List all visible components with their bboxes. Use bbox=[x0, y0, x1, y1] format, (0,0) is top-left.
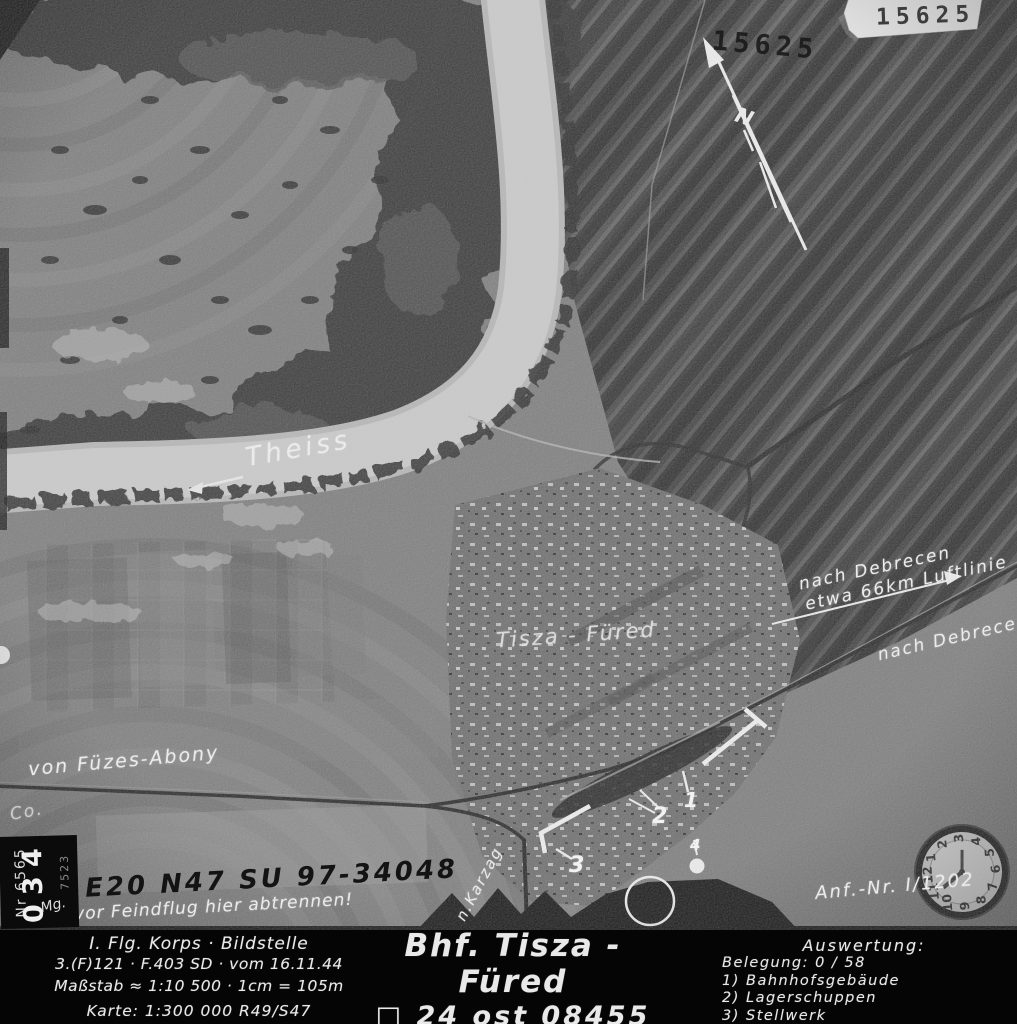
edge-stamp-digit: 4 bbox=[17, 848, 48, 868]
caption-eval-line: 2) Lagerschuppen bbox=[722, 990, 1014, 1008]
caption-target-code: □ 24 ost 08455 bbox=[348, 1001, 678, 1024]
caption-scale-line: Maßstab ≈ 1:10 500 · 1cm = 105m bbox=[34, 977, 364, 995]
caption-eval-line: Belegung: 0 / 58 bbox=[722, 955, 1014, 973]
caption-eval-block: Auswertung: Belegung: 0 / 58 1) Bahnhofs… bbox=[714, 936, 1014, 1024]
caption-title-block: Bhf. Tisza - Füred □ 24 ost 08455 bbox=[348, 928, 678, 1024]
aerial-recon-photo: N bbox=[0, 0, 1017, 1024]
caption-eval-line: 3) Stellwerk bbox=[722, 1008, 1014, 1024]
marker-3: 3 bbox=[569, 853, 584, 878]
caption-title: Bhf. Tisza - Füred bbox=[348, 928, 678, 1000]
caption-unit-block: I. Flg. Korps · Bildstelle 3.(F)121 · F.… bbox=[34, 934, 364, 1020]
edge-stamp-digit: 3 bbox=[18, 876, 49, 896]
tab-number: 15625 bbox=[876, 1, 976, 30]
photo-canvas: N bbox=[0, 0, 1017, 936]
caption-map-line: Karte: 1:300 000 R49/S47 bbox=[34, 1002, 364, 1020]
handwritten-mg: Mg. bbox=[39, 895, 67, 916]
caption-unit-line: 3.(F)121 · F.403 SD · vom 16.11.44 bbox=[34, 955, 364, 973]
marker-1: 1 bbox=[684, 788, 698, 812]
caption-unit-line: I. Flg. Korps · Bildstelle bbox=[34, 934, 364, 954]
edge-stamp: Nr 6565 4 3 0 7523 Mg. bbox=[0, 835, 79, 929]
edge-stamp-faint: 7523 bbox=[58, 854, 72, 890]
caption-eval-line: 1) Bahnhofsgebäude bbox=[722, 973, 1014, 991]
film-grain bbox=[0, 0, 1017, 930]
marker-4: 4 bbox=[690, 836, 700, 854]
caption-eval-title: Auswertung: bbox=[714, 936, 1014, 955]
marker-2: 2 bbox=[652, 804, 667, 829]
